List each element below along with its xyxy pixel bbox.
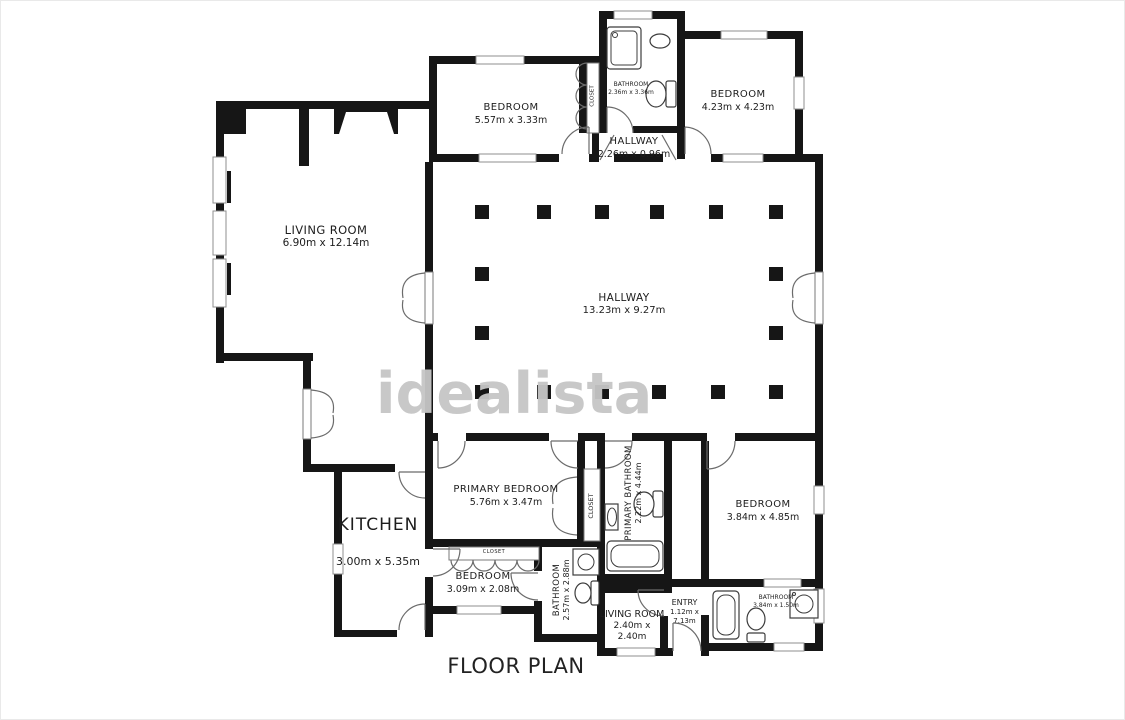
room-name: CLOSET: [449, 549, 539, 555]
column-marker: [595, 205, 609, 219]
room-label-living-room-small: LIVING ROOM 2.40m x 2.40m: [599, 609, 665, 643]
room-dims: 2.22m x 4.44m: [634, 445, 644, 541]
radiator-icon: [227, 171, 231, 203]
room-name: ENTRY: [664, 598, 705, 608]
column-marker: [769, 205, 783, 219]
column-marker: [475, 326, 489, 340]
toilet-icon: [575, 581, 599, 605]
room-label-bedroom-top: BEDROOM 5.57m x 3.33m: [431, 102, 591, 126]
column-marker: [769, 267, 783, 281]
plan-title: FLOOR PLAN: [411, 654, 621, 678]
room-dims: 3.09m x 2.08m: [427, 584, 539, 596]
room-dims: 3.84m x 4.85m: [695, 512, 831, 524]
room-dims: 6.90m x 12.14m: [226, 237, 426, 250]
room-dims: 2.57m x 2.88m: [562, 559, 572, 620]
room-label-entry: ENTRY 1.12m x 7.13m: [664, 598, 705, 626]
room-dims-kitchen: 3.00m x 5.35m: [311, 555, 445, 569]
column-marker: [652, 385, 666, 399]
room-name: BATHROOM: [598, 81, 664, 89]
room-label-primary-bedroom: PRIMARY BEDROOM 5.76m x 3.47m: [425, 484, 587, 508]
room-dims: 13.23m x 9.27m: [524, 305, 724, 318]
column-marker: [709, 205, 723, 219]
column-marker: [650, 205, 664, 219]
room-name: LIVING ROOM: [226, 223, 426, 237]
column-marker: [769, 326, 783, 340]
room-label-kitchen: KITCHEN: [311, 515, 445, 536]
room-dims: 1.12m x 7.13m: [664, 608, 705, 626]
radiator-icon: [227, 263, 231, 295]
room-label-living-room: LIVING ROOM 6.90m x 12.14m: [226, 223, 426, 251]
room-label-closet-top: CLOSET: [590, 85, 597, 106]
column-marker: [711, 385, 725, 399]
room-dims: 2.40m x 2.40m: [599, 621, 665, 644]
room-dims: 5.76m x 3.47m: [425, 497, 587, 509]
sink-icon: [650, 34, 670, 48]
watermark: idealista: [376, 361, 652, 427]
room-label-bathroom-bottom: BATHROOM 3.84m x 1.50m: [745, 594, 807, 609]
room-label-hallway-top: HALLWAY 2.26m x 0.96m: [585, 136, 683, 160]
room-label-bathroom-mid: BATHROOM 2.57m x 2.88m: [552, 559, 572, 620]
room-dims: 5.57m x 3.33m: [431, 115, 591, 127]
room-name: HALLWAY: [524, 292, 724, 305]
room-name: PRIMARY BATHROOM: [624, 445, 634, 541]
room-label-hallway-main: HALLWAY 13.23m x 9.27m: [524, 292, 724, 318]
room-name: LIVING ROOM: [599, 609, 665, 621]
room-dims: 3.84m x 1.50m: [745, 602, 807, 610]
bathtub-icon: [607, 541, 663, 571]
column-marker: [475, 267, 489, 281]
bathtub-icon: [713, 591, 739, 639]
column-marker: [537, 205, 551, 219]
room-dims: 4.23m x 4.23m: [667, 102, 809, 114]
room-name: KITCHEN: [311, 515, 445, 536]
room-name: BATHROOM: [745, 594, 807, 602]
room-label-closet-primary: CLOSET: [588, 493, 596, 518]
room-dims: 2.26m x 0.96m: [585, 149, 683, 161]
floor-plan-canvas: idealista: [0, 0, 1125, 720]
room-dims: 2.36m x 3.36m: [598, 89, 664, 97]
sink-icon: [605, 504, 618, 530]
room-name: PRIMARY BEDROOM: [425, 484, 587, 497]
room-label-primary-bathroom: PRIMARY BATHROOM 2.22m x 4.44m: [624, 445, 644, 541]
room-dims: 3.00m x 5.35m: [311, 555, 445, 569]
sink-icon: [573, 549, 599, 575]
room-label-bedroom-right: BEDROOM 3.84m x 4.85m: [695, 499, 831, 523]
room-name: BATHROOM: [552, 559, 562, 620]
column-marker: [769, 385, 783, 399]
room-label-bathroom-top: BATHROOM 2.36m x 3.36m: [598, 81, 664, 96]
room-name: HALLWAY: [585, 136, 683, 149]
column-marker: [475, 205, 489, 219]
room-name: BEDROOM: [427, 571, 539, 584]
room-name: BEDROOM: [667, 89, 809, 102]
shower-icon: [607, 27, 641, 69]
toilet-icon: [747, 608, 765, 642]
room-name: BEDROOM: [695, 499, 831, 512]
room-label-bedroom-top-right: BEDROOM 4.23m x 4.23m: [667, 89, 809, 113]
room-label-closet-bedroom: CLOSET: [449, 549, 539, 555]
room-label-bedroom-small: BEDROOM 3.09m x 2.08m: [427, 571, 539, 595]
room-name: BEDROOM: [431, 102, 591, 115]
